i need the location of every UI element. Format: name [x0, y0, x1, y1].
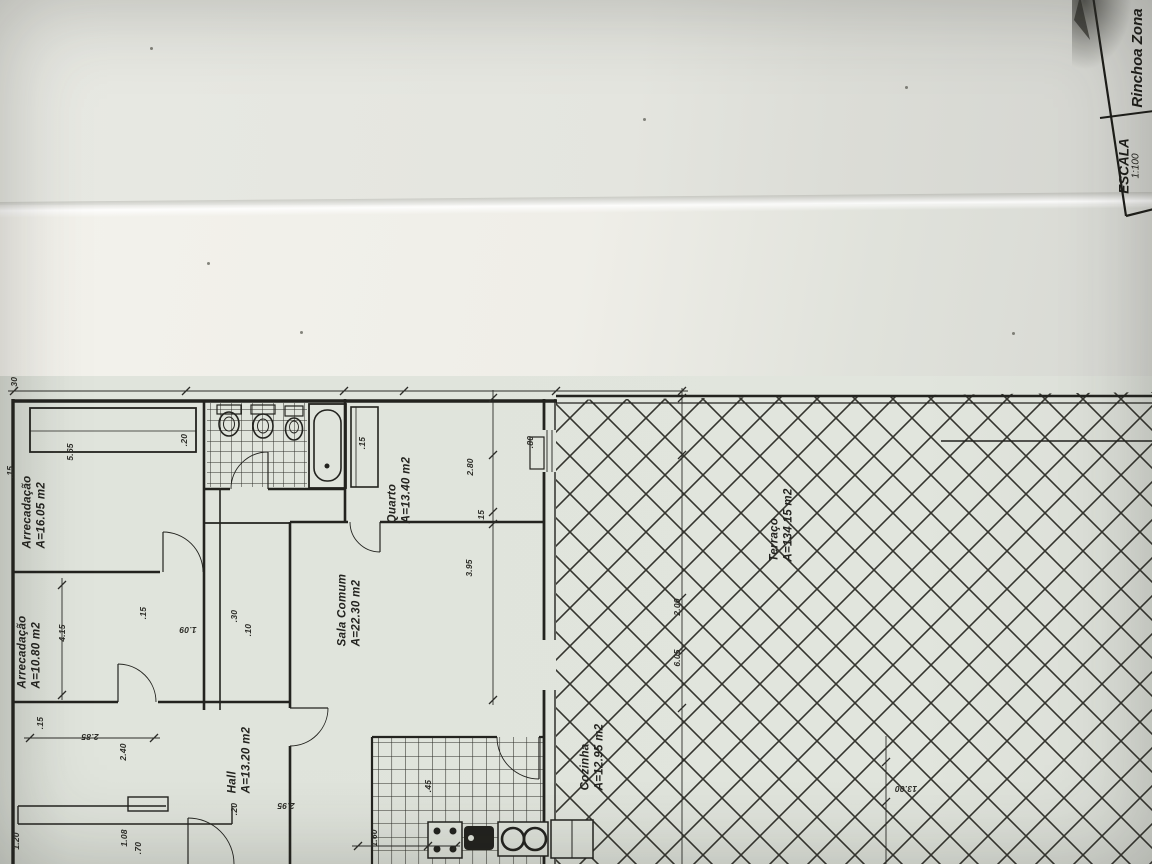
room-label-terraco: Terraço A=134.15 m2 — [768, 488, 797, 561]
room-label-arrecadacao-2: Arrecadação A=10.80 m2 — [16, 616, 45, 689]
room-label-quarto: Quarto A=13.40 m2 — [386, 457, 415, 524]
escala-value: 1:100 — [1132, 138, 1143, 194]
floor-plan-photo: Arrecadação A=16.05 m2 Arrecadação A=10.… — [0, 0, 1152, 864]
room-label-sala-comum: Sala Comum A=22.30 m2 — [336, 574, 365, 647]
room-area: A=22.30 m2 — [350, 574, 364, 647]
title-block-escala: ESCALA 1:100 — [1118, 138, 1143, 194]
paper-corner-shadow — [1072, 0, 1132, 70]
kitchen-appliances — [428, 820, 593, 858]
paper-speck — [643, 118, 646, 121]
room-area: A=10.80 m2 — [30, 616, 44, 689]
room-name: Sala Comum — [336, 574, 350, 647]
room-label-hall: Hall A=13.20 m2 — [226, 727, 255, 794]
paper-speck — [300, 331, 303, 334]
paper-speck — [905, 86, 908, 89]
room-label-arrecadacao-1: Arrecadação A=16.05 m2 — [21, 476, 50, 549]
kitchen-sink-icon — [498, 822, 548, 856]
floor-plan-drawing — [0, 376, 1152, 864]
room-area: A=13.40 m2 — [400, 457, 414, 524]
paper-upper-area — [0, 0, 1152, 208]
escala-label: ESCALA — [1117, 138, 1132, 194]
title-block-zone: Rinchoa Zona — [1130, 8, 1146, 107]
room-name: Arrecadação — [21, 476, 35, 549]
paper-speck — [150, 47, 153, 50]
room-name: Cozinha — [579, 724, 593, 791]
terrace-hatch — [556, 392, 1152, 864]
room-area: A=13.20 m2 — [240, 727, 254, 794]
stove-icon — [428, 822, 462, 858]
paper-speck — [1012, 332, 1015, 335]
room-area: A=134.15 m2 — [782, 488, 796, 561]
room-name: Terraço — [768, 488, 782, 561]
room-area: A=16.05 m2 — [35, 476, 49, 549]
room-area: A=12.95 m2 — [593, 724, 607, 791]
paper-bright-band — [0, 205, 1152, 378]
room-name: Quarto — [386, 457, 400, 524]
bathtub-icon — [309, 404, 346, 488]
paper-speck — [207, 262, 210, 265]
room-name: Arrecadação — [16, 616, 30, 689]
room-name: Hall — [226, 727, 240, 794]
room-label-cozinha: Cozinha A=12.95 m2 — [579, 724, 608, 791]
